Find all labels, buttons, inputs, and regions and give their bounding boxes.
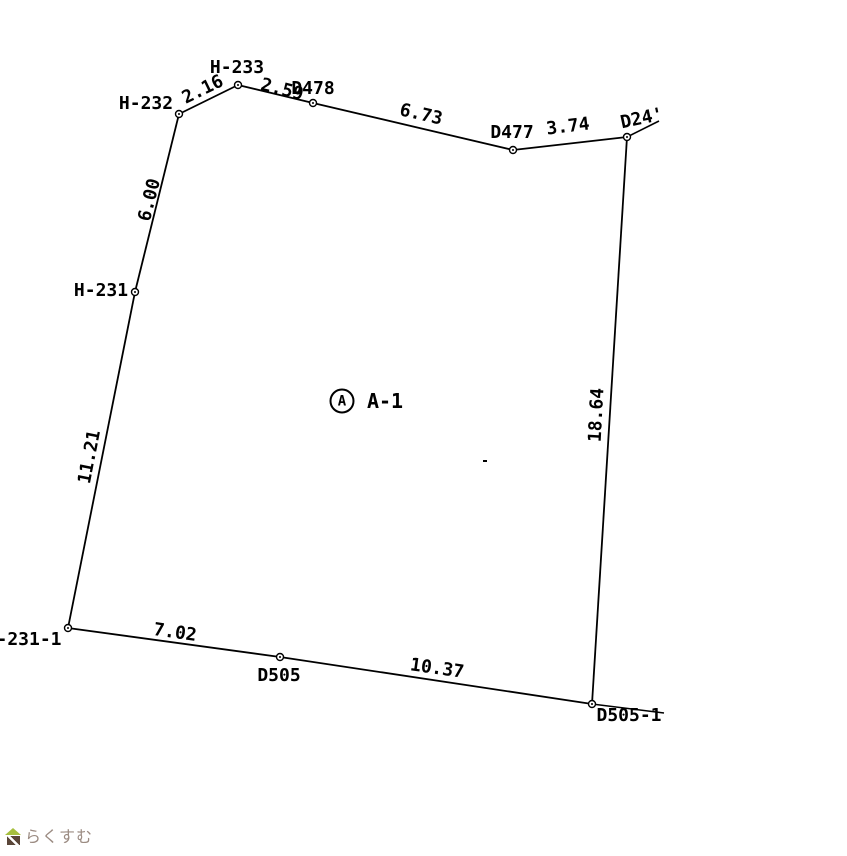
survey-point-center-dot	[279, 656, 281, 658]
survey-point-center-dot	[591, 703, 593, 705]
survey-point-center-dot	[237, 84, 239, 86]
rakusumu-watermark: らくすむ	[5, 828, 93, 845]
parcel-circle-letter: A	[338, 393, 346, 409]
distance-label: 18.64	[587, 387, 608, 442]
point-label: D478	[291, 80, 334, 98]
survey-point-center-dot	[178, 113, 180, 115]
watermark-text: らくすむ	[25, 829, 93, 845]
point-label: H-232	[119, 95, 173, 113]
survey-point-center-dot	[512, 149, 514, 151]
boundary-lines-svg	[0, 0, 847, 856]
point-label: H-231	[74, 282, 128, 300]
survey-point-center-dot	[67, 627, 69, 629]
point-label: -231-1	[0, 631, 62, 649]
distance-label: 3.74	[545, 115, 590, 138]
cadastral-survey-drawing: H-233H-2322.162.59D4786.73D4773.74D24'6.…	[0, 0, 847, 856]
survey-point-center-dot	[312, 102, 314, 104]
point-label: D477	[490, 124, 533, 142]
point-label: D505	[257, 667, 300, 685]
point-label: D505-1	[596, 707, 661, 725]
house-body-icon	[7, 836, 20, 845]
house-roof-icon	[5, 828, 21, 835]
parcel-name-label: A-1	[367, 389, 403, 413]
parcel-circle-mark: A	[330, 389, 355, 414]
stray-dot-mark	[483, 460, 487, 462]
survey-point-center-dot	[134, 291, 136, 293]
house-icon	[5, 828, 21, 845]
survey-point-center-dot	[626, 136, 628, 138]
